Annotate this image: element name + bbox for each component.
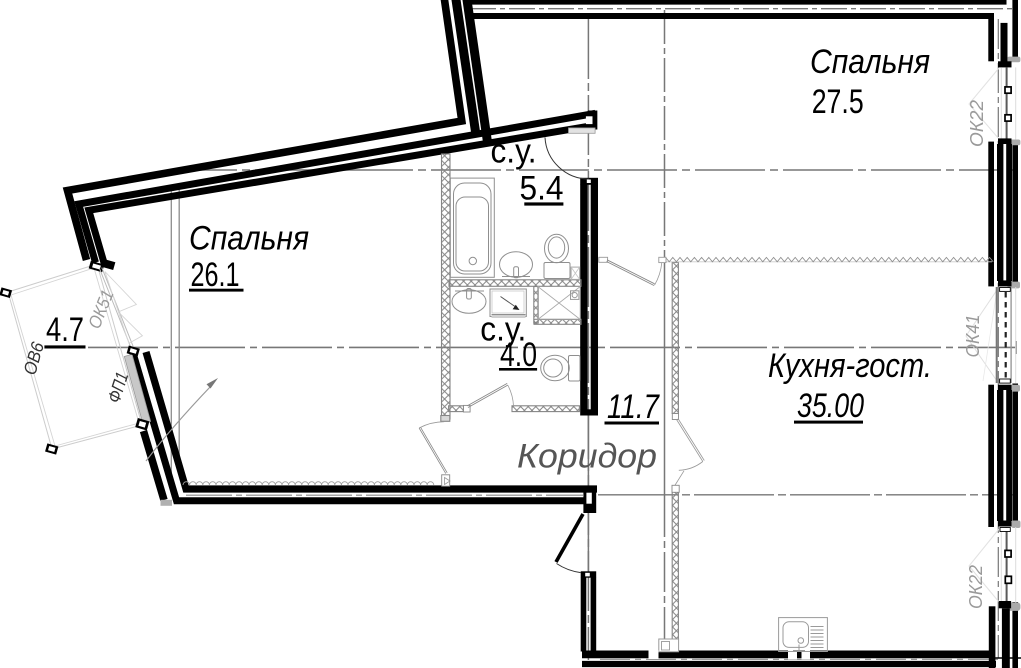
svg-text:ОК22: ОК22	[966, 565, 986, 609]
svg-text:Спальня: Спальня	[810, 43, 930, 81]
svg-text:ОК41: ОК41	[963, 315, 983, 358]
svg-text:Кухня-гост.: Кухня-гост.	[768, 347, 932, 385]
svg-text:с.у.: с.у.	[491, 133, 537, 171]
svg-text:5.4: 5.4	[520, 170, 564, 208]
svg-text:26.1: 26.1	[191, 256, 240, 294]
svg-text:Спальня: Спальня	[189, 220, 309, 258]
svg-text:11.7: 11.7	[607, 388, 660, 426]
svg-text:4.7: 4.7	[46, 311, 84, 349]
svg-text:ОК22: ОК22	[967, 100, 987, 147]
svg-text:27.5: 27.5	[812, 83, 864, 121]
svg-text:Коридор: Коридор	[517, 438, 657, 476]
svg-text:35.00: 35.00	[797, 387, 864, 425]
